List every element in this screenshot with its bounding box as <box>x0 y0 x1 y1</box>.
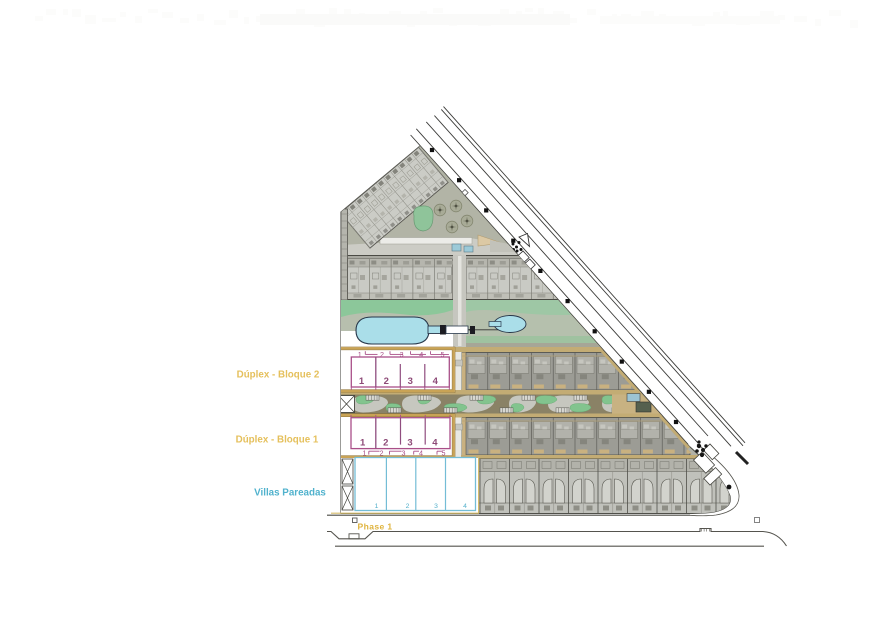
svg-text:4: 4 <box>432 437 438 448</box>
svg-text:3: 3 <box>408 376 413 387</box>
svg-text:2: 2 <box>383 437 388 448</box>
svg-text:Phase 1: Phase 1 <box>358 521 393 531</box>
svg-text:Dúplex - Bloque 1: Dúplex - Bloque 1 <box>236 435 319 446</box>
svg-text:3: 3 <box>434 503 438 510</box>
svg-text:1: 1 <box>363 449 367 458</box>
svg-text:Villas Pareadas: Villas Pareadas <box>254 488 326 499</box>
svg-text:1: 1 <box>358 350 362 359</box>
svg-text:1: 1 <box>359 376 365 387</box>
svg-text:2: 2 <box>380 350 384 359</box>
svg-text:3: 3 <box>402 449 406 458</box>
svg-text:3: 3 <box>407 437 412 448</box>
svg-text:4: 4 <box>463 503 467 510</box>
svg-text:5: 5 <box>442 449 446 458</box>
svg-text:2: 2 <box>384 376 389 387</box>
svg-text:2: 2 <box>380 449 384 458</box>
svg-text:2: 2 <box>406 503 410 510</box>
svg-text:1: 1 <box>360 437 366 448</box>
svg-text:1: 1 <box>375 503 379 510</box>
svg-text:4: 4 <box>419 449 423 458</box>
svg-text:Dúplex - Bloque 2: Dúplex - Bloque 2 <box>237 370 320 381</box>
svg-text:4: 4 <box>433 376 439 387</box>
